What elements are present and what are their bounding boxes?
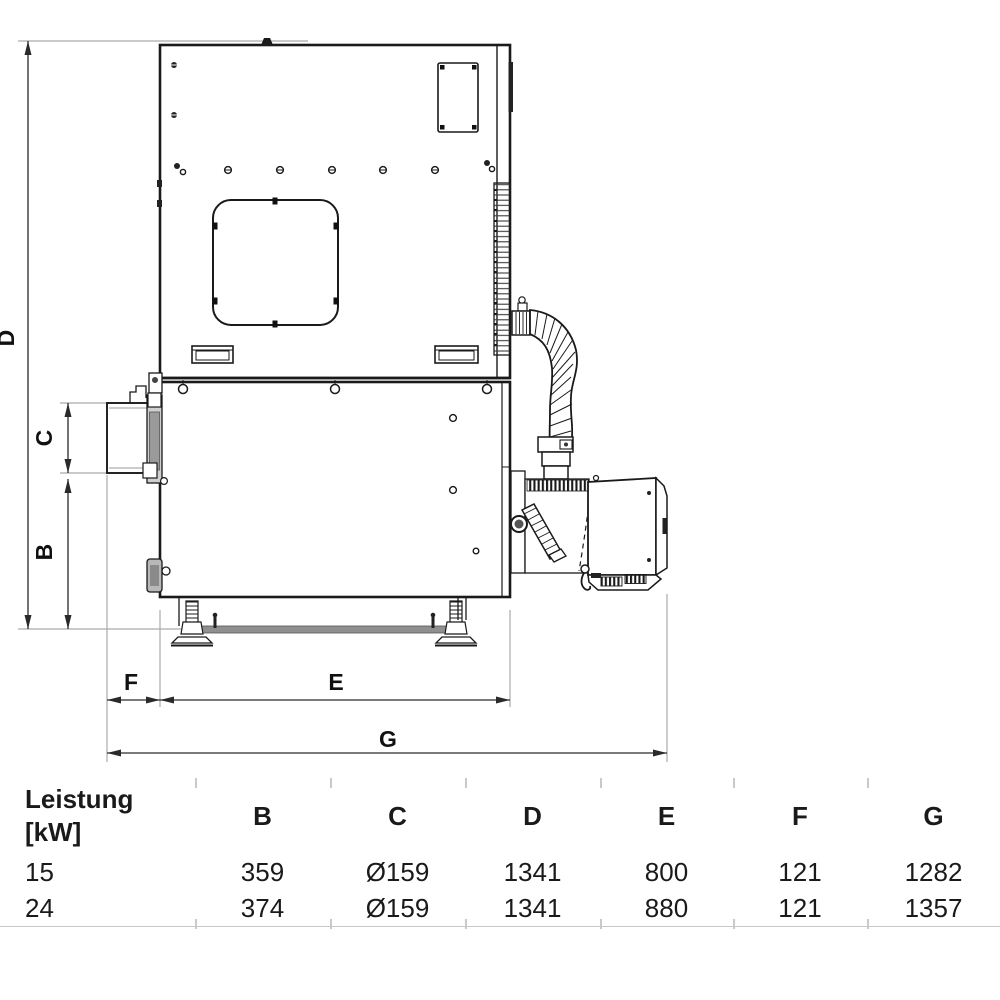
table-header-e: E — [600, 778, 733, 854]
dim-label-c: C — [31, 430, 57, 447]
dim-label-g: G — [379, 726, 397, 752]
cell-c: Ø159 — [330, 890, 465, 926]
lifting-lug — [261, 38, 273, 45]
dim-label-e: E — [328, 669, 343, 695]
dimension-table: Leistung [kW] B C D E F G 15 359 Ø159 13… — [0, 778, 1000, 927]
dim-label-f: F — [124, 669, 138, 695]
cell-c: Ø159 — [330, 854, 465, 890]
column-tick — [465, 778, 467, 788]
column-tick — [330, 778, 332, 788]
foot-left — [171, 601, 213, 646]
dimension-f — [107, 697, 160, 704]
table-header-power: Leistung [kW] — [0, 778, 195, 854]
handle-left — [192, 346, 233, 363]
hose-collar — [512, 297, 530, 335]
cell-f: 121 — [733, 890, 867, 926]
dimension-e — [160, 697, 510, 704]
burner-unit — [502, 467, 667, 590]
column-tick — [465, 919, 467, 929]
page: D C B F E G Leistung [kW] B C D E F G 15… — [0, 0, 1000, 1000]
column-tick — [867, 919, 869, 929]
corrugated-side-channel — [494, 183, 510, 355]
dim-label-b: B — [31, 544, 57, 561]
table-header-f: F — [733, 778, 867, 854]
cell-g: 1357 — [867, 890, 1000, 926]
cell-e: 800 — [600, 854, 733, 890]
cell-power: 15 — [0, 854, 195, 890]
cell-d: 1341 — [465, 854, 600, 890]
dimension-c — [65, 403, 72, 473]
column-tick — [867, 778, 869, 788]
boiler-technical-drawing: D C B F E G — [0, 0, 1000, 780]
cell-power: 24 — [0, 890, 195, 926]
column-tick — [600, 919, 602, 929]
cell-b: 374 — [195, 890, 330, 926]
power-label: Leistung — [25, 783, 133, 816]
table-header-c: C — [330, 778, 465, 854]
cell-e: 880 — [600, 890, 733, 926]
flue-outlet-pipe — [107, 373, 167, 484]
base-frame — [179, 597, 466, 633]
table-header-d: D — [465, 778, 600, 854]
handle-right — [435, 346, 478, 363]
column-tick — [195, 778, 197, 788]
cell-d: 1341 — [465, 890, 600, 926]
column-tick — [733, 778, 735, 788]
column-tick — [330, 919, 332, 929]
power-unit: [kW] — [25, 816, 81, 849]
table-header-g: G — [867, 778, 1000, 854]
inspection-door — [213, 198, 339, 328]
cell-b: 359 — [195, 854, 330, 890]
flexible-hose — [530, 310, 577, 479]
column-tick — [600, 778, 602, 788]
foot-right — [435, 601, 477, 646]
column-tick — [733, 919, 735, 929]
dimension-b — [65, 479, 72, 629]
table-header-b: B — [195, 778, 330, 854]
cell-g: 1282 — [867, 854, 1000, 890]
junction-box — [438, 63, 478, 132]
dim-label-d: D — [0, 330, 19, 347]
dimension-d — [25, 41, 32, 629]
right-edge-bracket — [509, 62, 514, 112]
cell-f: 121 — [733, 854, 867, 890]
column-tick — [195, 919, 197, 929]
